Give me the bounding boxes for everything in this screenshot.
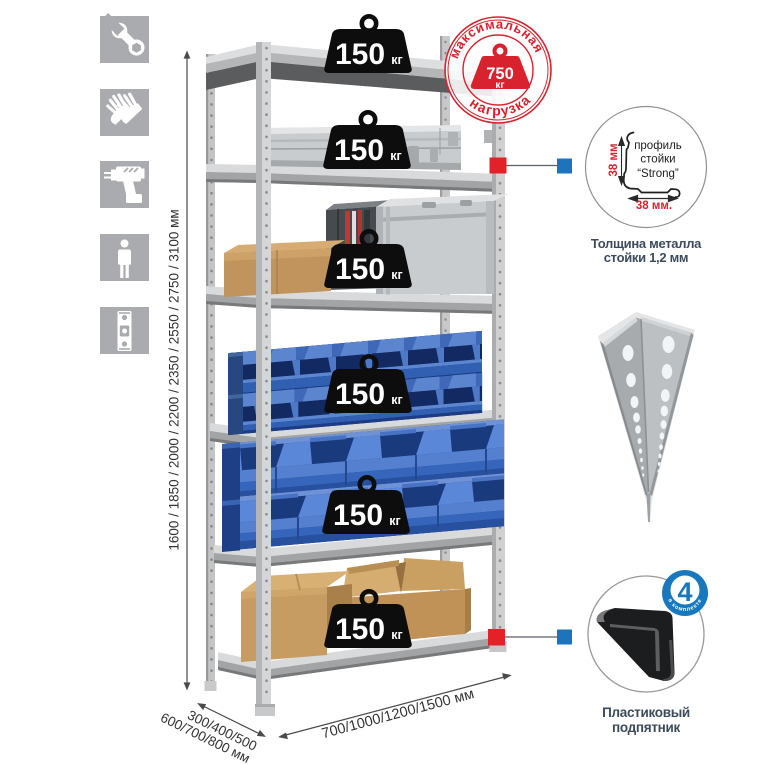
svg-text:150: 150 [333,499,383,532]
svg-text:Толщина металла: Толщина металла [591,236,702,251]
svg-text:150: 150 [335,38,385,71]
svg-text:Пластиковый: Пластиковый [602,705,690,720]
svg-text:150: 150 [335,613,385,646]
svg-text:кг: кг [390,149,401,163]
svg-text:кг: кг [391,53,402,67]
svg-text:150: 150 [335,378,385,411]
svg-text:150: 150 [334,134,384,167]
svg-text:кг: кг [391,268,402,282]
svg-text:38 мм: 38 мм [608,143,620,176]
svg-text:стойки: стойки [640,154,675,166]
svg-text:1600 / 1850 / 2000 / 2200 / 23: 1600 / 1850 / 2000 / 2200 / 2350 / 2550 … [167,209,182,550]
svg-text:кг: кг [389,514,400,528]
svg-text:4: 4 [677,577,692,607]
svg-text:кг: кг [391,628,402,642]
svg-text:38 мм.: 38 мм. [636,200,672,212]
svg-text:подпятник: подпятник [612,720,680,735]
svg-text:“Strong”: “Strong” [637,168,679,180]
svg-text:кг: кг [391,393,402,407]
svg-text:кг: кг [495,80,504,91]
svg-text:150: 150 [335,253,385,286]
svg-text:стойки 1,2 мм: стойки 1,2 мм [604,250,689,265]
svg-text:профиль: профиль [634,140,682,152]
